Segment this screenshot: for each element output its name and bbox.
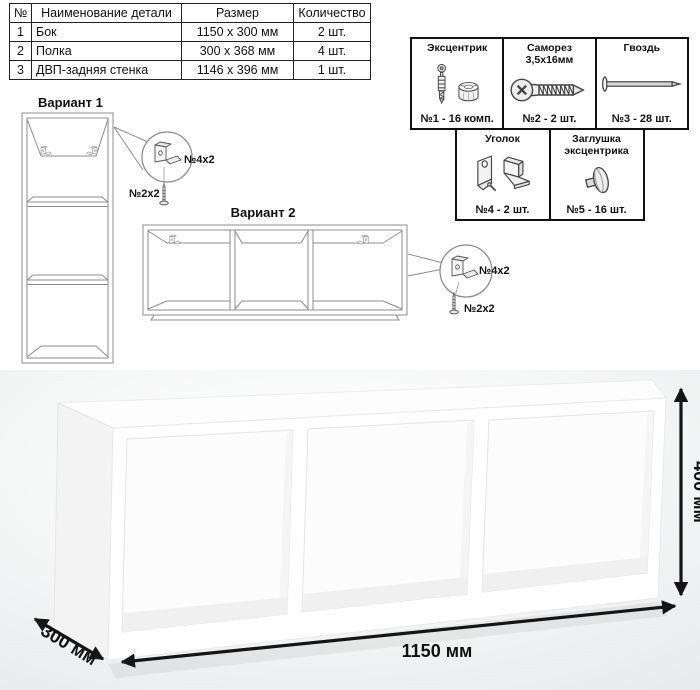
part-name: Бок (32, 23, 182, 42)
variant2-bracket-label: №4х2 (479, 265, 510, 277)
part-size: 300 х 368 мм (182, 42, 294, 61)
part-num: 1 (10, 23, 32, 42)
screw-icon (160, 184, 169, 205)
header-num: № (10, 4, 32, 23)
variant2-diagram (143, 225, 407, 320)
assembly-instruction-sheet: № Наименование детали Размер Количество … (0, 0, 700, 690)
variant2-callout: №4х2 №2х2 (408, 245, 510, 315)
table-row: 2 Полка 300 х 368 мм 4 шт. (10, 42, 371, 61)
part-num: 2 (10, 42, 32, 61)
variant2-title: Вариант 2 (231, 205, 296, 220)
shelf-render: 400 мм 1150 мм 300 мм (0, 370, 700, 690)
header-qty: Количество (294, 4, 371, 23)
variant1-title: Вариант 1 (38, 95, 103, 110)
header-size: Размер (182, 4, 294, 23)
part-name: ДВП-задняя стенка (32, 61, 182, 80)
part-name: Полка (32, 42, 182, 61)
part-qty: 1 шт. (294, 61, 371, 80)
part-size: 1150 х 300 мм (182, 23, 294, 42)
table-row: 3 ДВП-задняя стенка 1146 х 396 мм 1 шт. (10, 61, 371, 80)
variant1-diagram (22, 113, 113, 363)
parts-table-header-row: № Наименование детали Размер Количество (10, 4, 371, 23)
header-name: Наименование детали (32, 4, 182, 23)
parts-table: № Наименование детали Размер Количество … (9, 3, 371, 80)
variant1-bracket-label: №4х2 (184, 154, 215, 166)
hardware-name: Саморез 3,5х16мм (506, 42, 592, 66)
part-qty: 4 шт. (294, 42, 371, 61)
table-row: 1 Бок 1150 х 300 мм 2 шт. (10, 23, 371, 42)
hardware-name: Гвоздь (624, 42, 661, 54)
hardware-name: Эксцентрик (427, 42, 487, 54)
variant-diagrams: Вариант 1 №4х2 №2х2 Вариант 2 (0, 88, 700, 373)
part-num: 3 (10, 61, 32, 80)
width-dimension-label: 1150 мм (402, 641, 473, 661)
height-dimension-label: 400 мм (690, 461, 700, 523)
variant1-screw-label: №2х2 (129, 188, 160, 200)
variant2-screw-label: №2х2 (464, 303, 495, 315)
part-qty: 2 шт. (294, 23, 371, 42)
variant1-callout: №4х2 №2х2 (114, 127, 215, 205)
product-render-area: 400 мм 1150 мм 300 мм (0, 370, 700, 690)
part-size: 1146 х 396 мм (182, 61, 294, 80)
